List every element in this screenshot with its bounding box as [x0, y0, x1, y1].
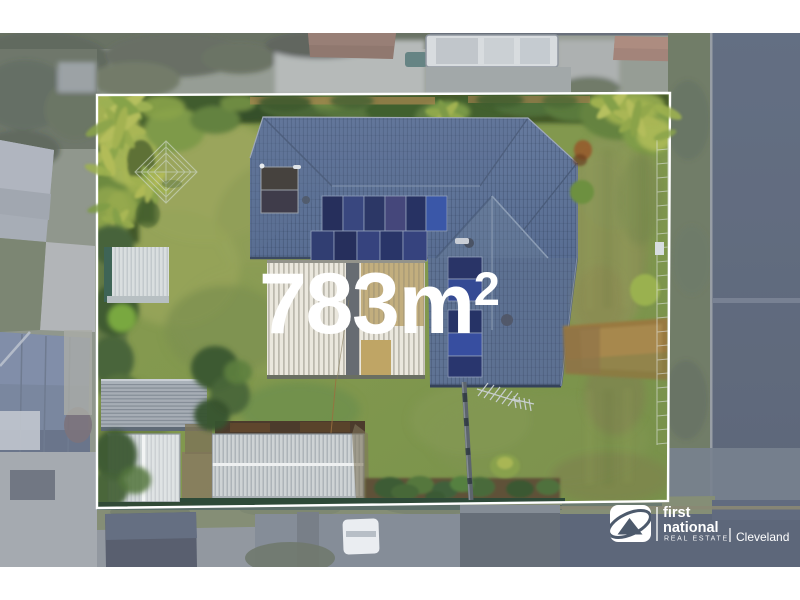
svg-text:national: national	[663, 520, 719, 536]
svg-text:first: first	[663, 505, 691, 521]
svg-text:Cleveland: Cleveland	[736, 530, 789, 544]
svg-text:REAL ESTATE: REAL ESTATE	[664, 536, 729, 543]
svg-text:783m2: 783m2	[259, 256, 499, 352]
